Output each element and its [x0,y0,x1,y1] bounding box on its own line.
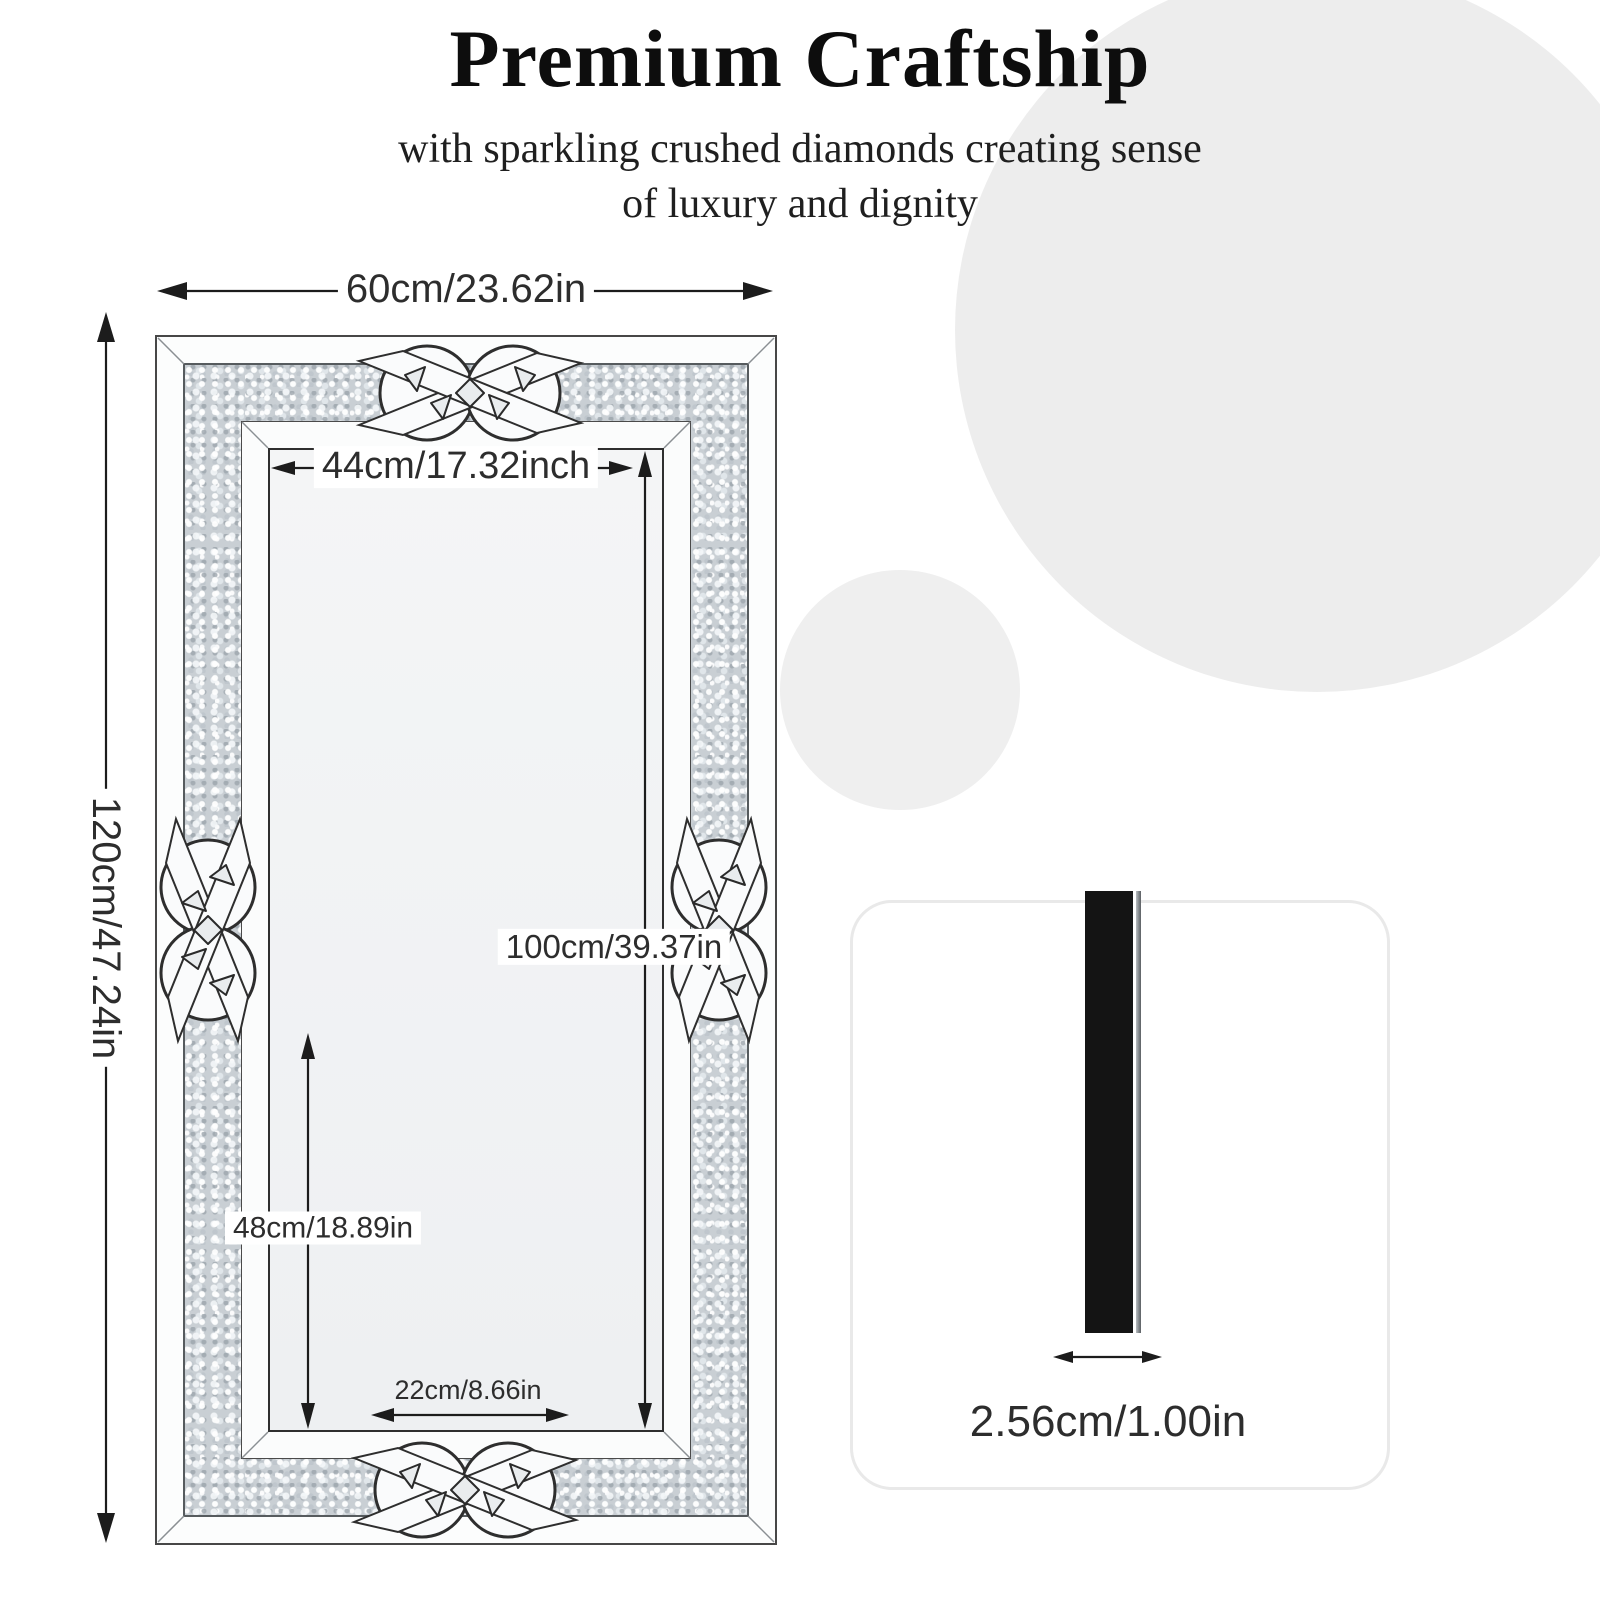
bottom-width-label: 22cm/8.66in [386,1376,549,1406]
celtic-knot-icon-top [355,337,585,449]
inner-height-label: 100cm/39.37in [498,929,730,965]
celtic-knot-icon-left [152,815,264,1045]
page-title: Premium Craftship [20,18,1580,100]
mirror-side-profile [1085,891,1133,1333]
background-circle-small [780,570,1020,810]
header: Premium Craftship with sparkling crushed… [20,18,1580,233]
subtitle-line-2: of luxury and dignity [20,177,1580,232]
inner-width-label: 44cm/17.32inch [314,446,598,488]
product-infographic: Premium Craftship with sparkling crushed… [0,0,1600,1600]
subtitle-line-1: with sparkling crushed diamonds creating… [20,122,1580,177]
subtitle: with sparkling crushed diamonds creating… [20,122,1580,233]
thickness-label: 2.56cm/1.00in [962,1398,1254,1446]
outer-height-label: 120cm/47.24in [84,789,128,1067]
lower-height-label: 48cm/18.89in [225,1212,421,1245]
mirror-side-edge [1136,891,1141,1333]
outer-width-label: 60cm/23.62in [338,267,594,311]
celtic-knot-icon-bottom [350,1434,580,1546]
